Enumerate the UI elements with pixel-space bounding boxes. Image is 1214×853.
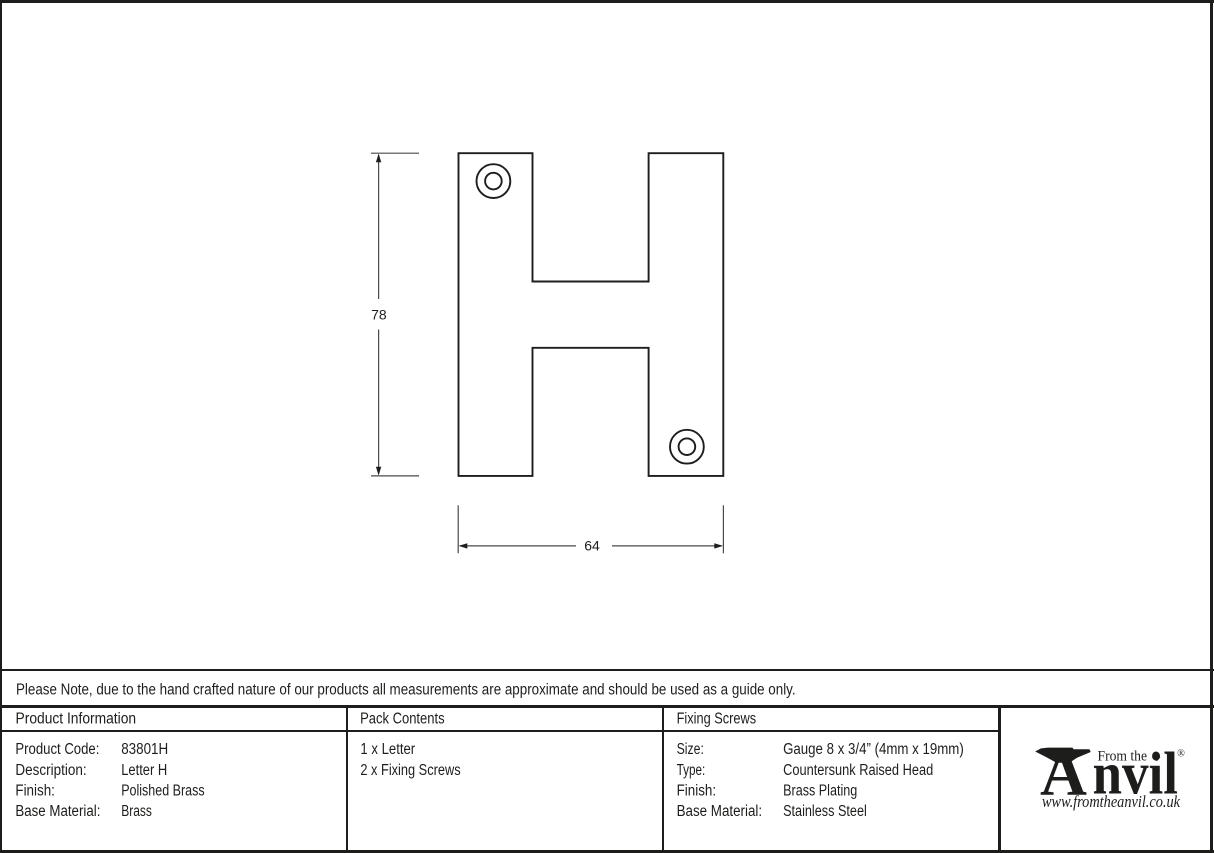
svg-text:Polished Brass: Polished Brass: [121, 783, 205, 800]
svg-text:Fixing Screws: Fixing Screws: [677, 710, 757, 727]
svg-text:Pack Contents: Pack Contents: [360, 710, 445, 727]
svg-text:Product Code:: Product Code:: [15, 741, 99, 758]
svg-text:Gauge 8 x 3/4” (4mm x 19mm): Gauge 8 x 3/4” (4mm x 19mm): [783, 741, 964, 758]
svg-text:Stainless Steel: Stainless Steel: [783, 803, 867, 820]
svg-text:Type:: Type:: [677, 762, 706, 779]
svg-text:Size:: Size:: [677, 741, 704, 758]
svg-text:Finish:: Finish:: [677, 783, 717, 800]
svg-text:www.fromtheanvil.co.uk: www.fromtheanvil.co.uk: [1042, 792, 1181, 811]
svg-text:Base Material:: Base Material:: [677, 803, 763, 820]
svg-text:Please Note, due to the hand c: Please Note, due to the hand crafted nat…: [16, 682, 796, 699]
svg-text:64: 64: [584, 538, 600, 554]
svg-text:Brass Plating: Brass Plating: [783, 783, 857, 800]
svg-text:Base Material:: Base Material:: [15, 803, 100, 820]
svg-text:Product Information: Product Information: [16, 710, 137, 727]
svg-text:Letter H: Letter H: [121, 762, 167, 779]
svg-text:2 x Fixing Screws: 2 x Fixing Screws: [360, 762, 460, 779]
svg-text:Description:: Description:: [15, 762, 86, 779]
svg-text:Countersunk Raised Head: Countersunk Raised Head: [783, 762, 933, 779]
svg-text:1 x Letter: 1 x Letter: [360, 741, 415, 758]
svg-text:78: 78: [371, 306, 387, 322]
svg-text:®: ®: [1177, 748, 1185, 759]
svg-text:83801H: 83801H: [121, 741, 168, 758]
svg-text:Brass: Brass: [121, 803, 152, 820]
svg-text:Finish:: Finish:: [15, 783, 55, 800]
svg-text:From the: From the: [1098, 748, 1148, 764]
